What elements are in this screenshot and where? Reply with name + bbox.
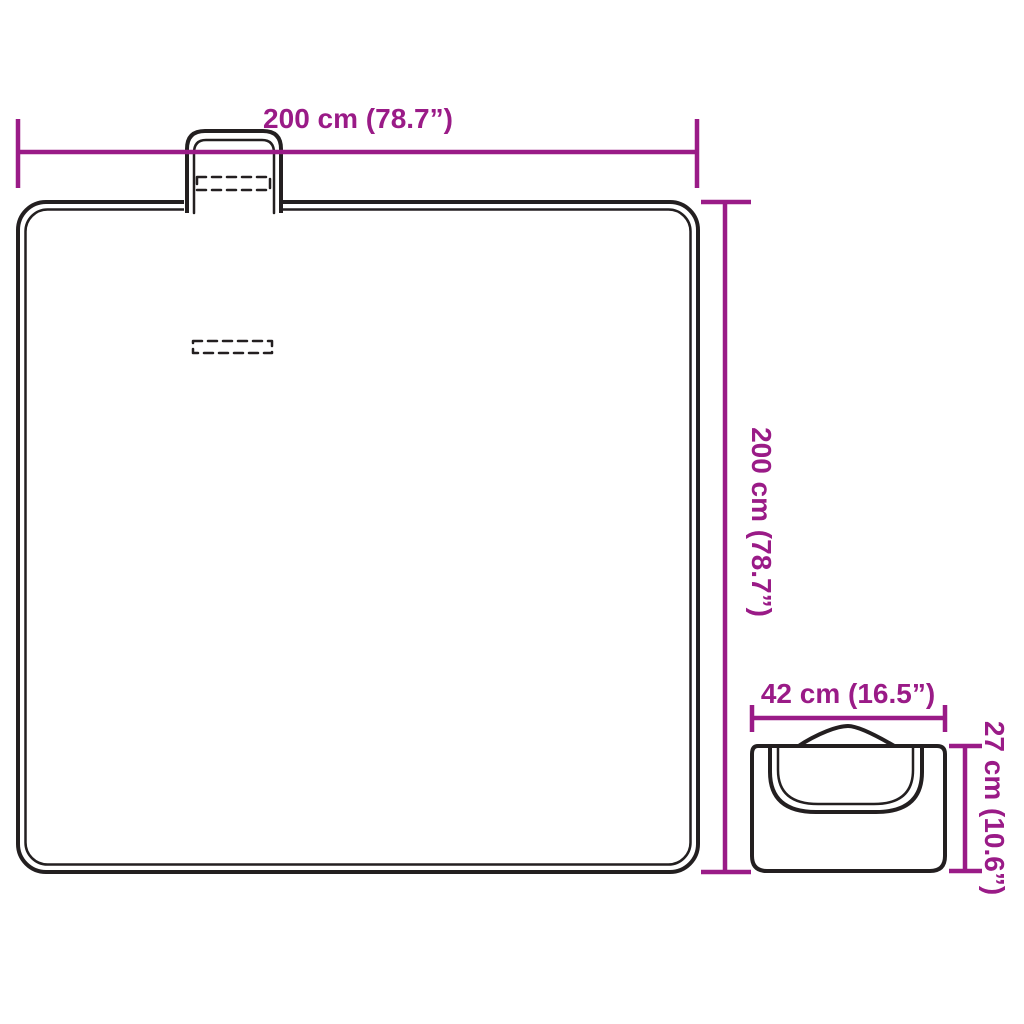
folded-width-dimension-label: 42 cm (16.5”) xyxy=(761,678,935,709)
product-dimension-diagram: 200 cm (78.7”) 200 cm (78.7”) 42 cm (16.… xyxy=(0,0,1024,1024)
folded-blanket-flap-peak xyxy=(797,726,896,747)
folded-blanket xyxy=(752,726,945,871)
folded-height-dimension-label: 27 cm (10.6”) xyxy=(979,721,1010,895)
dimension-diagram-canvas: 200 cm (78.7”) 200 cm (78.7”) 42 cm (16.… xyxy=(0,0,1024,1024)
unfolded-width-dimension: 200 cm (78.7”) xyxy=(18,103,697,188)
folded-height-dimension: 27 cm (10.6”) xyxy=(949,721,1010,895)
folded-width-dimension: 42 cm (16.5”) xyxy=(752,678,945,732)
unfolded-blanket xyxy=(18,131,698,872)
unfolded-width-dimension-label: 200 cm (78.7”) xyxy=(263,103,453,134)
unfolded-height-dimension-label: 200 cm (78.7”) xyxy=(746,427,777,617)
unfolded-blanket-outline xyxy=(18,202,698,872)
folded-blanket-outline xyxy=(752,746,945,871)
carry-strap-tab xyxy=(187,131,281,213)
